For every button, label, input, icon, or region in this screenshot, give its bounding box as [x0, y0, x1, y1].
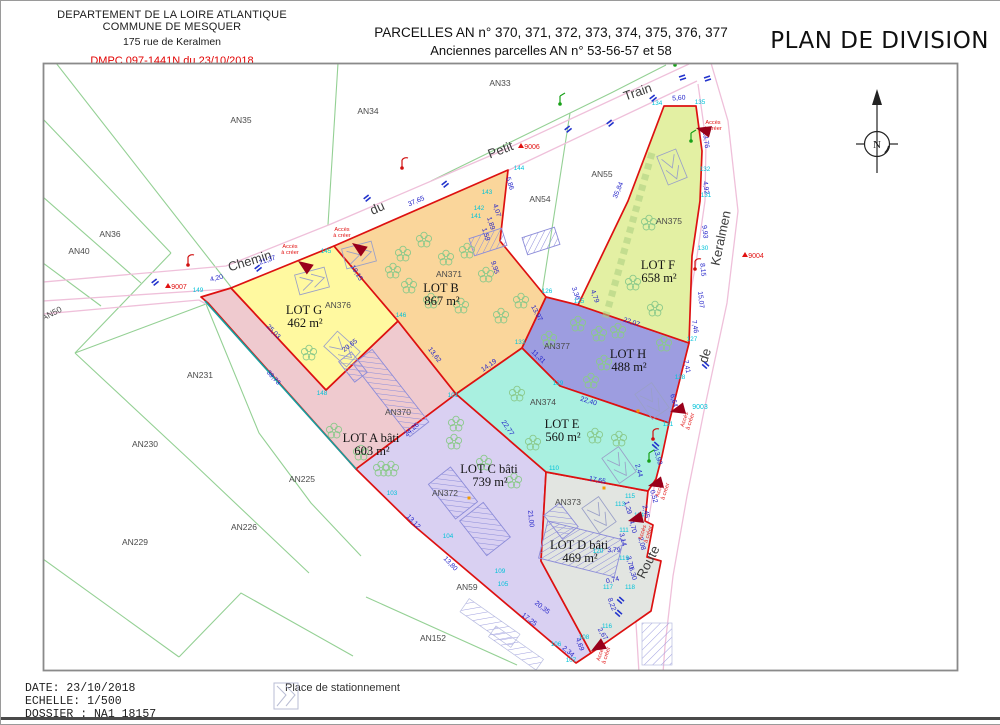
parcel-label-an33: AN33 [489, 78, 511, 88]
orange-dot-marker [603, 487, 606, 490]
point-number: 134 [652, 100, 663, 107]
point-number: 128 [675, 374, 686, 381]
measurement-label: 7,46 [690, 320, 699, 334]
lot-H-area: 488 m² [611, 360, 647, 374]
point-number: 103 [387, 490, 398, 497]
lot-E-name: LOT E [545, 417, 580, 431]
point-number: 116 [602, 623, 613, 630]
parcel-label-an377: AN377 [544, 341, 570, 351]
north-label: N [873, 139, 881, 151]
measurement-label: 35,84 [612, 181, 625, 200]
date-line: DATE: 23/10/2018 [25, 682, 156, 695]
street-furniture-mark [704, 76, 711, 81]
measurement-label: 37,65 [407, 195, 426, 208]
parcel-label-an225: AN225 [289, 474, 315, 484]
lot-F-region [578, 106, 702, 343]
parcel-label-an54: AN54 [529, 194, 551, 204]
benchmark-label-9003: 9003 [692, 404, 708, 411]
north-arrow: N [856, 89, 898, 173]
orange-dot-marker [468, 497, 471, 500]
point-number: 126 [542, 288, 553, 295]
point-number: 101 [448, 392, 459, 399]
lot-C-area: 739 m² [472, 475, 508, 489]
parcel-label-an373: AN373 [555, 497, 581, 507]
parcel-label-an375: AN375 [656, 216, 682, 226]
parcel-label-an370: AN370 [385, 407, 411, 417]
point-number: 127 [687, 336, 698, 343]
parcel-label-an374: AN374 [530, 397, 556, 407]
street-furniture-mark [363, 195, 371, 202]
point-number: 115 [625, 493, 636, 500]
parcel-label-an34: AN34 [357, 106, 379, 116]
parcel-label-an36: AN36 [99, 229, 121, 239]
lot-A-name: LOT A bâti [343, 431, 400, 445]
measurement-label: 9,93 [700, 225, 708, 239]
benchmark-label-9006: 9006 [524, 144, 540, 151]
lot-F-area: 658 m² [641, 271, 677, 285]
street-name-train: Train [621, 80, 653, 104]
access-note: Accèsà créer [281, 244, 299, 256]
measurement-label: 15,07 [696, 291, 705, 309]
point-number: 111 [619, 527, 629, 534]
division-plan-map: CheminduPetitTrainKeralmendeRoute AN33AN… [1, 1, 1000, 724]
building-footprint [522, 227, 560, 255]
lot-B-area: 867 m² [424, 294, 460, 308]
parcel-label-an230: AN230 [132, 439, 158, 449]
lot-B-name: LOT B [423, 281, 459, 295]
lot-A-area: 603 m² [354, 444, 390, 458]
parcel-label-an372: AN372 [432, 488, 458, 498]
parcel-label-an55: AN55 [591, 169, 613, 179]
point-number: 120 [593, 548, 604, 555]
street-name-keralmen: Keralmen [707, 209, 733, 267]
page-bottom-rule [1, 717, 1000, 720]
parcel-label-an35: AN35 [230, 115, 252, 125]
point-number: 142 [474, 205, 485, 212]
street-furniture-mark [151, 279, 159, 286]
point-number: 117 [603, 584, 614, 591]
access-note-line2: à créer [281, 250, 299, 256]
benchmark-triangle [518, 143, 524, 148]
access-note-line2: à créer [333, 233, 351, 239]
point-number: 135 [695, 99, 706, 106]
point-number: 141 [471, 213, 482, 220]
point-number: 146 [396, 312, 407, 319]
parcel-label-an231: AN231 [187, 370, 213, 380]
point-number: 149 [193, 287, 204, 294]
red-utility-pole-icon [186, 255, 194, 267]
street-furniture-mark [441, 181, 449, 188]
point-number: 109 [495, 568, 506, 575]
point-number: 118 [625, 584, 636, 591]
point-number: 129 [553, 380, 564, 387]
green-utility-pole-icon [673, 54, 680, 67]
measurement-label: 4,20 [209, 273, 224, 283]
point-number: 132 [700, 166, 711, 173]
point-number: 104 [443, 533, 454, 540]
point-number: 125 [574, 298, 585, 305]
point-number: 121 [663, 421, 674, 428]
street-furniture-mark [679, 75, 686, 80]
lot-E-area: 560 m² [545, 430, 581, 444]
access-note: Accèsà créer [333, 227, 351, 239]
plan-page: DEPARTEMENT DE LA LOIRE ATLANTIQUE COMMU… [0, 0, 1000, 725]
parcel-label-an226: AN226 [231, 522, 257, 532]
lot-F-name: LOT F [641, 258, 675, 272]
point-number: 144 [514, 165, 525, 172]
north-arrow-head [872, 89, 882, 105]
point-number: 131 [701, 192, 712, 199]
orange-dot-marker [637, 410, 640, 413]
point-number: 113 [615, 501, 626, 508]
benchmark-triangle [165, 283, 171, 288]
point-number: 108 [579, 634, 590, 641]
lot-G-area: 462 m² [287, 316, 323, 330]
lot-H-name: LOT H [610, 347, 646, 361]
map-content: CheminduPetitTrainKeralmendeRoute AN33AN… [40, 54, 764, 673]
lot-C-name: LOT C bâti [460, 462, 518, 476]
benchmark-triangle [742, 252, 748, 257]
parcel-label-an59: AN59 [456, 582, 478, 592]
parcel-label-an152: AN152 [420, 633, 446, 643]
measurement-label: 5,60 [672, 95, 686, 103]
point-number: 130 [698, 245, 709, 252]
legend-parking-label: Place de stationnement [285, 682, 400, 694]
street-name-petit: Petit [486, 138, 516, 161]
point-number: 106 [551, 641, 562, 648]
point-number: 110 [549, 465, 560, 472]
point-number: 145 [321, 248, 332, 255]
scale-line: ECHELLE: 1/500 [25, 695, 156, 708]
point-number: 148 [317, 390, 328, 397]
point-number: 143 [482, 189, 493, 196]
measurement-label: 8,15 [698, 263, 706, 277]
legend-parking: Place de stationnement [273, 682, 400, 694]
benchmark-label-9007: 9007 [171, 284, 187, 291]
red-utility-pole-icon [400, 158, 408, 170]
green-utility-pole-icon [558, 93, 565, 106]
parcel-label-an376: AN376 [325, 300, 351, 310]
point-number: 119 [619, 555, 630, 562]
measurement-label: 3,79 [607, 547, 620, 554]
parcel-label-an371: AN371 [436, 269, 462, 279]
measurement-label: 7,41 [682, 359, 692, 374]
parking-icon [273, 682, 299, 710]
street-furniture-mark [564, 126, 572, 133]
parcel-label-an40: AN40 [68, 246, 90, 256]
lot-G-name: LOT G [286, 303, 322, 317]
point-number: 107 [566, 657, 577, 664]
footer-info-block: DATE: 23/10/2018 ECHELLE: 1/500 DOSSIER … [25, 682, 156, 722]
benchmark-label-9004: 9004 [748, 253, 764, 260]
point-number: 133 [515, 339, 526, 346]
point-number: 105 [498, 581, 509, 588]
parcel-label-an229: AN229 [122, 537, 148, 547]
paved-area [642, 623, 672, 665]
